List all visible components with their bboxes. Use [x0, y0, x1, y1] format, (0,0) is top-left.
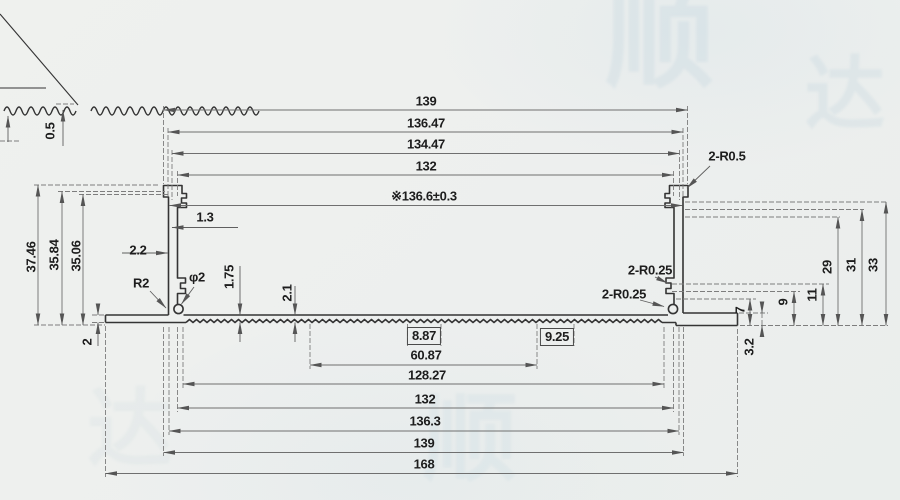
detail-wave-a [4, 107, 76, 115]
dim-boxed-9-25: 9.25 [540, 328, 574, 346]
dim-height-9: 9 [777, 299, 790, 306]
dim-flange-thickness-left: 2 [81, 339, 94, 346]
label-radius-r025-upper: 2-R0.25 [628, 264, 672, 277]
dim-height-7: 7 [734, 307, 747, 314]
dim-width-136-3: 136.3 [409, 415, 440, 428]
dim-tooth-height: 0.5 [44, 122, 57, 139]
label-corner-radius-top: 2-R0.5 [708, 150, 745, 163]
extension-lines [0, 104, 888, 477]
label-fillet-r2: R2 [133, 277, 149, 290]
drawing-sheet: 顺 达 顺 达 [0, 0, 900, 500]
leader-lines [8, 110, 762, 346]
label-radius-r025-lower: 2-R0.25 [602, 288, 646, 301]
label-hole-phi2: φ2 [189, 271, 205, 284]
dim-lip-1-3: 1.3 [196, 211, 213, 224]
dim-width-132-bottom: 132 [415, 393, 436, 406]
dim-width-136-47: 136.47 [407, 117, 445, 130]
dim-ledge-1-75: 1.75 [223, 265, 236, 289]
dim-flange-thickness-right: 3.2 [743, 338, 756, 355]
dim-height-31: 31 [845, 258, 858, 272]
serration-detail-view [0, 14, 259, 115]
dim-height-35-84: 35.84 [48, 239, 61, 270]
dim-width-128-27: 128.27 [408, 369, 446, 382]
dim-width-134-47: 134.47 [407, 138, 445, 151]
dim-height-29: 29 [821, 260, 834, 274]
phi2-hole-left [174, 304, 183, 313]
dim-base-thickness-2-1: 2.1 [281, 284, 294, 301]
detail-wave-b [91, 107, 259, 115]
dim-ref-width: ※136.6±0.3 [391, 190, 457, 203]
phi2-hole-right [668, 304, 677, 313]
dim-overall-width-top: 139 [416, 95, 437, 108]
dim-inner-width-132: 132 [416, 160, 437, 173]
profile-outline [106, 186, 738, 326]
dim-height-11: 11 [806, 288, 819, 301]
dim-overall-width-bottom: 168 [414, 458, 435, 471]
dim-height-35-06: 35.06 [70, 240, 83, 271]
dim-height-37-46: 37.46 [25, 241, 38, 272]
dim-wall-thickness: 2.2 [129, 244, 146, 257]
dim-height-33: 33 [867, 258, 880, 272]
dim-width-139-bottom: 139 [414, 437, 435, 450]
dim-boxed-8-87: 8.87 [407, 327, 441, 345]
dim-width-60-87: 60.87 [410, 349, 441, 362]
serration-path [186, 320, 662, 323]
